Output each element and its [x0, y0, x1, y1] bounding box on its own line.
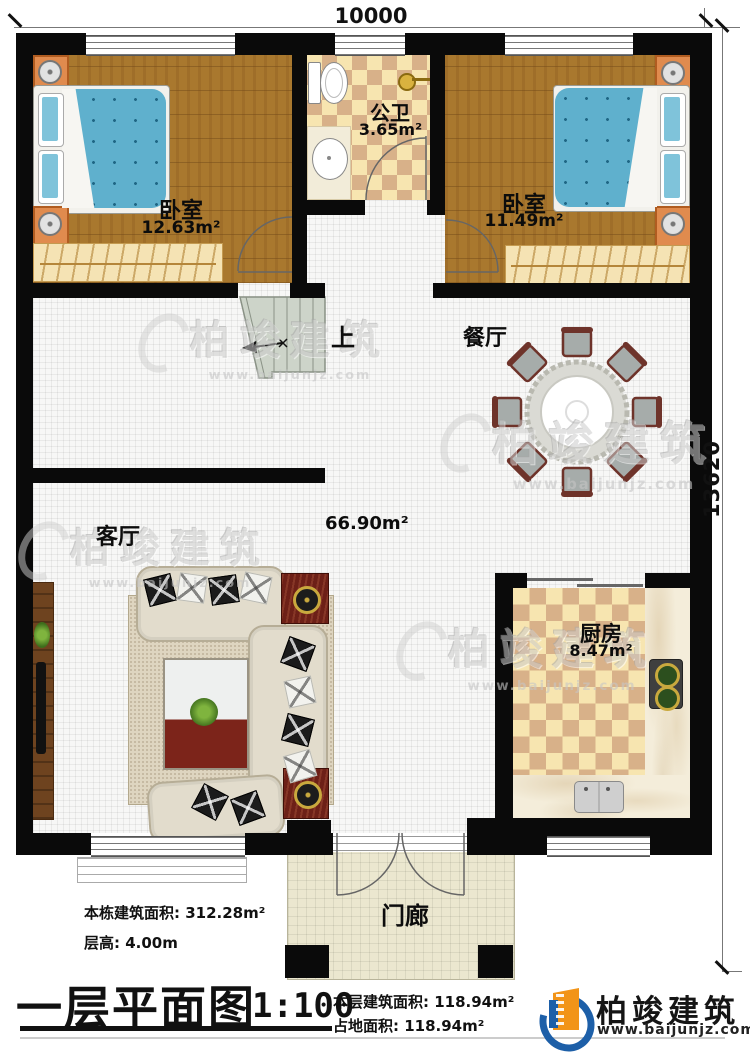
floor-area-line: 本层建筑面积: 118.94m² — [333, 991, 514, 1012]
brand-website: www.baijunjz.com — [597, 1022, 750, 1038]
floor-area-label: 本层建筑面积: — [333, 993, 434, 1011]
room-area-living: 66.90m² — [325, 513, 405, 534]
title-rule-thick — [20, 1026, 332, 1031]
kitchen-sliding-door — [527, 578, 593, 581]
dimension-height: 13620 — [700, 419, 724, 539]
room-area-kitchen: 8.47m² — [568, 641, 634, 660]
kitchen-sliding-door — [577, 584, 643, 587]
path — [337, 833, 399, 895]
footprint-value: 118.94m² — [404, 1017, 484, 1035]
room-label-living: 客厅 — [90, 519, 146, 551]
logo-windows — [556, 994, 564, 1026]
room-area-bathroom: 3.65m² — [348, 120, 433, 139]
path — [402, 833, 464, 895]
path — [366, 138, 426, 200]
floor-area-value: 118.94m² — [434, 993, 514, 1011]
dimension-width: 10000 — [329, 4, 413, 28]
total-area-line: 本栋建筑面积: 312.28m² — [84, 902, 265, 923]
floor-height-line: 层高: 4.00m — [84, 932, 178, 953]
room-area-bedroom-left: 12.63m² — [131, 218, 231, 238]
brand-logo-icon — [540, 986, 592, 1042]
stairs-up-label: 上 — [330, 318, 356, 353]
path — [238, 217, 292, 271]
room-label-dining: 餐厅 — [455, 320, 515, 352]
room-area-bedroom-right: 11.49m² — [474, 211, 574, 231]
floor-height-value: 4.00m — [125, 934, 178, 952]
footprint-line: 占地面积: 118.94m² — [333, 1015, 484, 1036]
floor-plan: 卧室 12.63m² 公卫 3.65m² 卧室 11.49m² 餐厅 客厅 66… — [0, 0, 750, 1054]
floor-height-label: 层高: — [84, 934, 125, 952]
total-area-value: 312.28m² — [185, 904, 265, 922]
total-area-label: 本栋建筑面积: — [84, 904, 185, 922]
footprint-label: 占地面积: — [333, 1017, 404, 1035]
room-label-porch: 门廊 — [374, 896, 436, 931]
